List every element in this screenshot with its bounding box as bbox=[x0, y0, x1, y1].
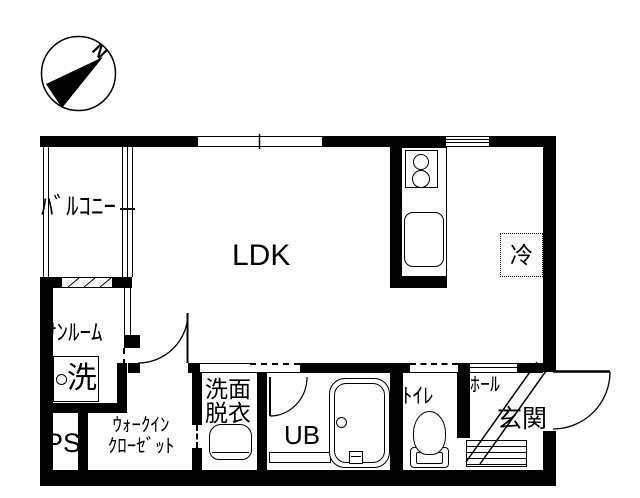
room-label-laundry: 洗 bbox=[67, 363, 97, 395]
hatch-lines bbox=[68, 278, 111, 287]
room-label-hall: ﾎｰﾙ bbox=[470, 375, 500, 396]
room-label-wic: ｳｫｰｸｲﾝ ｸﾛｰｾﾞｯﾄ bbox=[88, 415, 194, 457]
room-label-sunroom: ｻﾝﾙｰﾑ bbox=[45, 320, 103, 344]
room-label-ldk: LDK bbox=[232, 240, 290, 272]
floor-plan: N LDK ﾊﾞﾙｺﾆｰ ｻﾝﾙｰﾑ 洗 PS ｳｫｰｸｲﾝ ｸﾛｰｾﾞｯﾄ 洗… bbox=[0, 0, 640, 498]
room-label-ps: PS bbox=[42, 429, 84, 457]
label-refrigerator: 冷 bbox=[500, 233, 543, 277]
ub-door-arc bbox=[270, 377, 307, 416]
room-label-entrance: 玄関 bbox=[497, 406, 547, 432]
wic-door-arc bbox=[138, 313, 188, 363]
room-label-washroom: 洗面 脱衣 bbox=[201, 377, 255, 425]
compass-needle bbox=[46, 57, 103, 108]
room-label-toilet: ﾄｲﾚ bbox=[402, 386, 434, 408]
washroom-label-line2: 脱衣 bbox=[201, 401, 255, 425]
wic-label-line1: ｳｫｰｸｲﾝ bbox=[88, 415, 194, 436]
room-label-ub: UB bbox=[284, 422, 320, 449]
room-label-balcony: ﾊﾞﾙｺﾆｰ bbox=[41, 194, 116, 220]
entrance-door-arc bbox=[553, 372, 610, 429]
wic-label-line2: ｸﾛｰｾﾞｯﾄ bbox=[88, 436, 194, 457]
washroom-label-line1: 洗面 bbox=[201, 377, 255, 401]
